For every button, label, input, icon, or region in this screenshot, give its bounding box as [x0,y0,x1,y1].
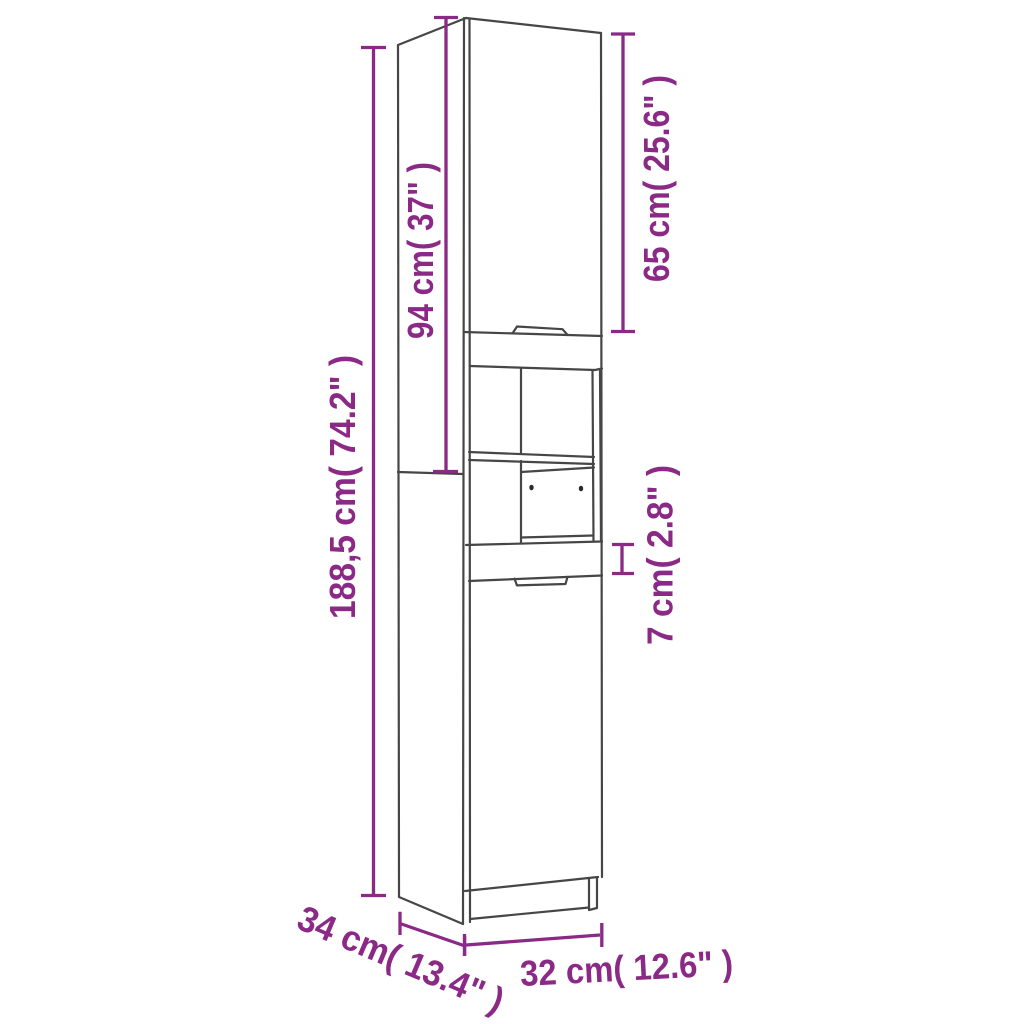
svg-text:94 cm( 37" ): 94 cm( 37" ) [400,162,441,339]
svg-text:188,5 cm( 74.2" ): 188,5 cm( 74.2" ) [322,355,363,619]
svg-text:7 cm( 2.8" ): 7 cm( 2.8" ) [640,465,681,645]
svg-text:65 cm( 25.6" ): 65 cm( 25.6" ) [636,75,677,282]
